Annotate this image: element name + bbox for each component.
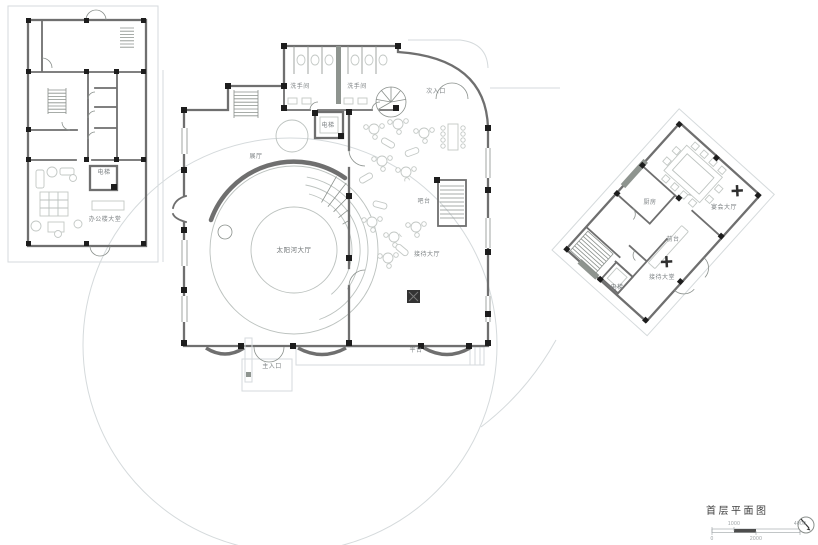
sun-river-hall-circle <box>210 120 378 334</box>
room-label-office-lobby: 办公楼大堂 <box>89 217 122 223</box>
scale-label-0: 0 <box>710 536 713 542</box>
reception-furniture <box>358 119 465 313</box>
office-stair <box>48 88 66 114</box>
east-stair <box>434 177 466 226</box>
room-label-reception-hall: 接待大厅 <box>414 252 440 258</box>
room-label-office-elevator: 电梯 <box>97 170 110 176</box>
room-label-reception-lobby: 接待大堂 <box>649 275 675 281</box>
annex-columns <box>563 121 761 324</box>
south-canopies <box>206 347 470 362</box>
plant-icon <box>732 185 743 196</box>
room-label-exhibition-hall: 展厅 <box>249 154 262 160</box>
room-label-kitchen: 厨房 <box>643 200 656 206</box>
room-label-washroom-left: 洗手间 <box>290 84 310 90</box>
drawing-title: 首层平面图 <box>706 502 769 517</box>
room-label-annex-elevator: 电梯 <box>610 285 623 291</box>
scale-label-2000: 2000 <box>750 536 762 542</box>
room-label-banquet-hall: 宴会大厅 <box>711 205 737 211</box>
annex-building-plan <box>552 109 777 339</box>
room-label-washroom-right: 洗手间 <box>347 84 367 90</box>
room-label-platform: 平台 <box>409 348 422 354</box>
room-label-main-entrance: 主入口 <box>262 364 282 370</box>
long-table <box>448 124 458 150</box>
floor-plan-page: 电梯 办公楼大堂 洗手间 洗手间 次入口 电梯 展厅 吧台 太阳河大厅 接待大厅… <box>0 0 818 545</box>
room-label-secondary-entrance: 次入口 <box>426 89 446 95</box>
office-stair-2 <box>120 28 134 47</box>
scale-bar <box>712 527 800 535</box>
room-label-bar-counter: 吧台 <box>417 199 430 205</box>
office-building-plan <box>26 10 146 256</box>
scale-label-1000: 1000 <box>728 521 740 527</box>
room-label-front-desk: 前台 <box>666 237 679 243</box>
spiral-stair <box>376 87 406 117</box>
entry-stair <box>234 90 258 118</box>
floor-plan-drawing <box>0 0 818 545</box>
room-label-sun-river-hall: 太阳河大厅 <box>277 248 312 255</box>
office-lobby-furniture <box>31 167 124 238</box>
room-label-main-elevator: 电梯 <box>321 123 334 129</box>
scale-label-4000: 4000 <box>794 521 806 527</box>
